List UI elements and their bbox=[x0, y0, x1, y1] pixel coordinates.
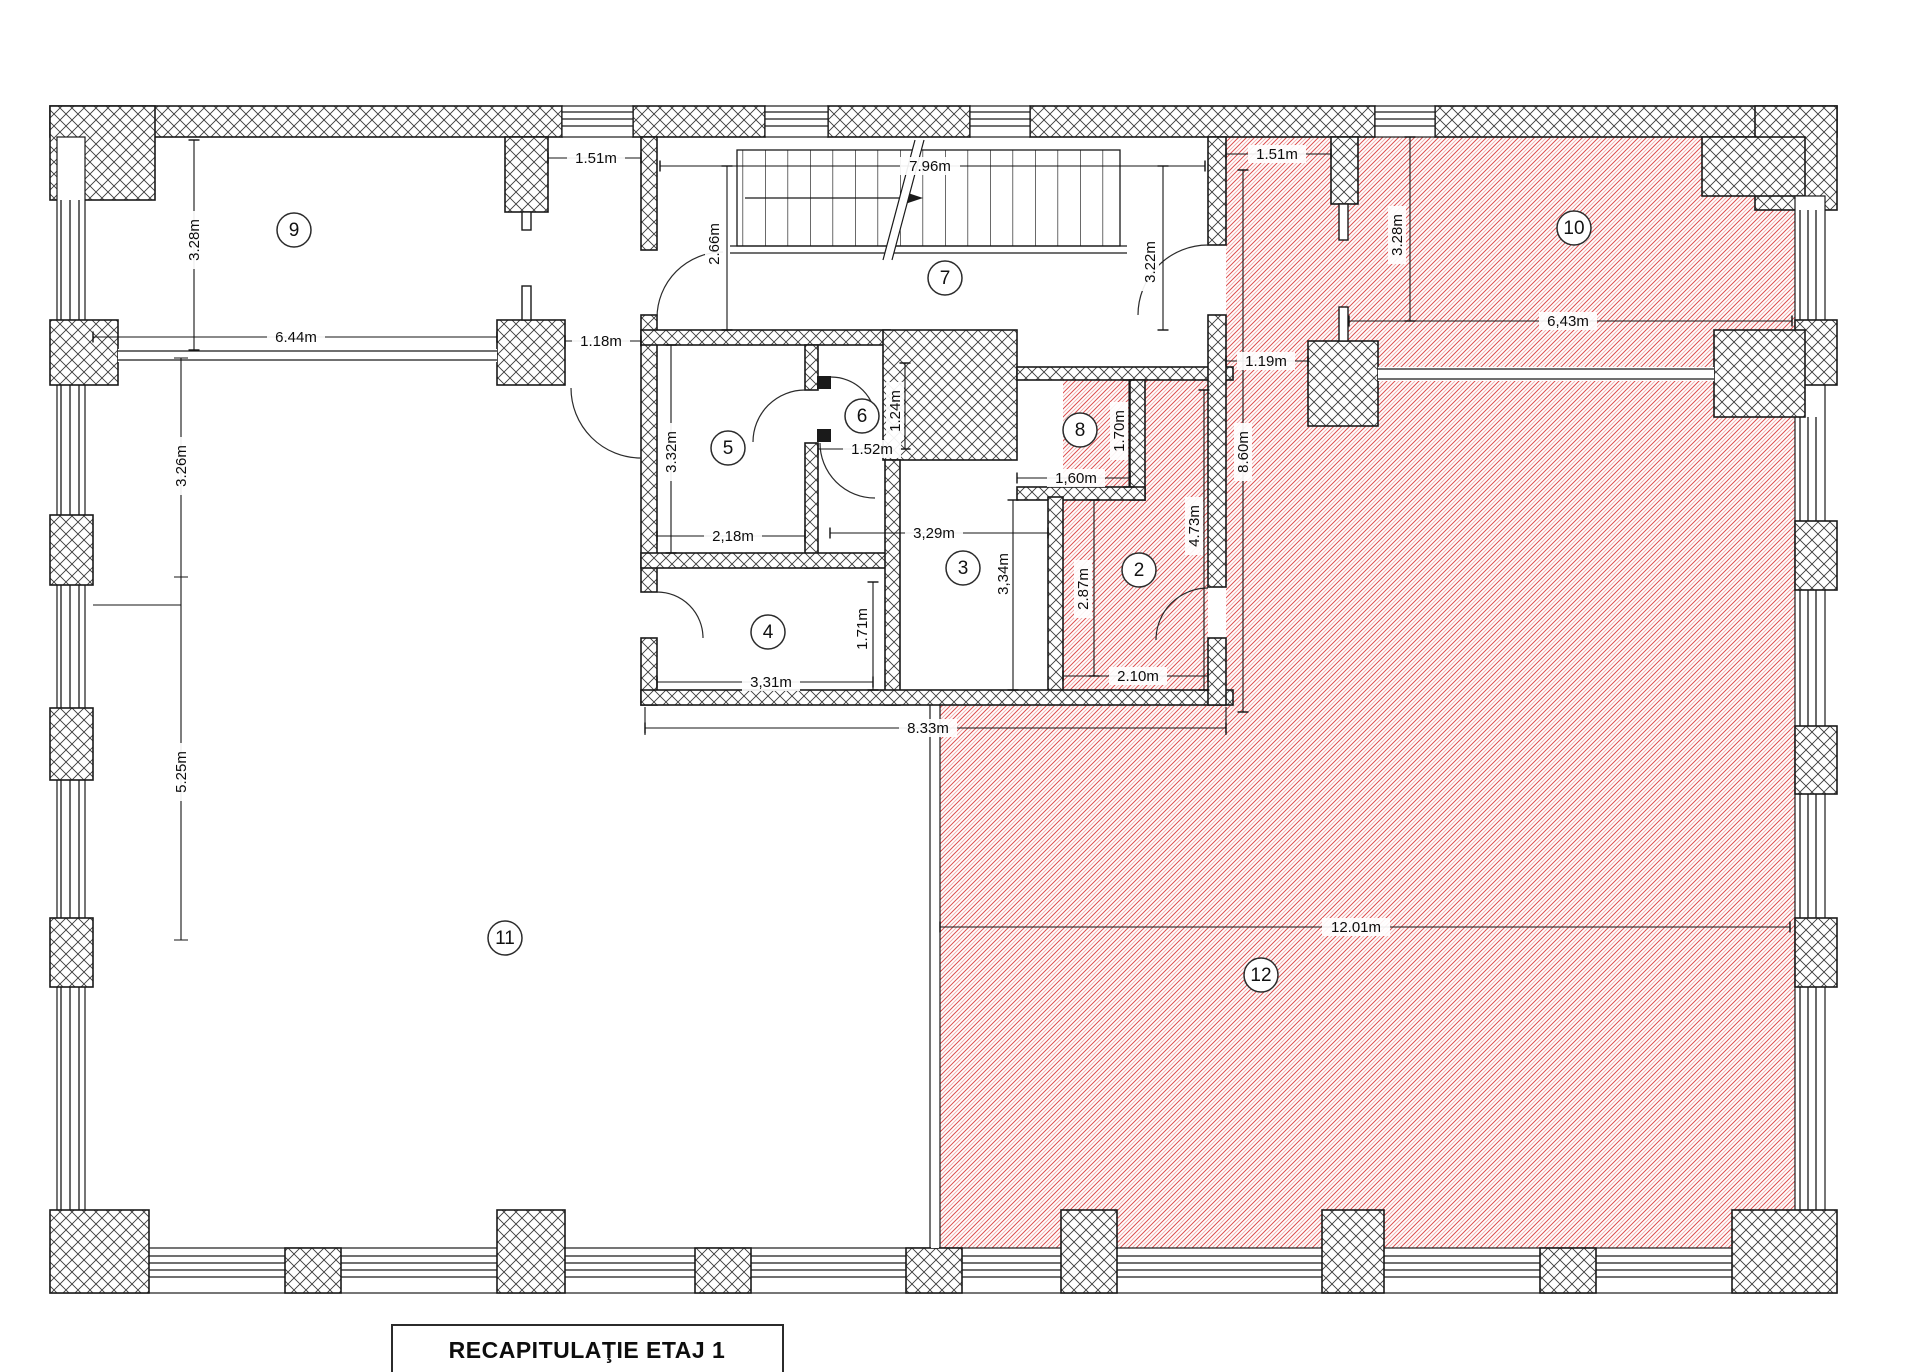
svg-text:2.87m: 2.87m bbox=[1075, 568, 1092, 610]
partition-room9-room11 bbox=[118, 349, 497, 362]
partition-room10-room12 bbox=[1378, 367, 1714, 381]
corner-bottom-left bbox=[50, 1210, 149, 1293]
svg-text:1.19m: 1.19m bbox=[1245, 353, 1287, 370]
svg-text:3.22m: 3.22m bbox=[1142, 241, 1159, 283]
dim-stair-left-height: 2.66m bbox=[705, 215, 723, 273]
dim-top-gap-left: 1.51m bbox=[567, 149, 625, 167]
svg-text:1.24m: 1.24m bbox=[887, 390, 904, 432]
room-badge-2: 2 bbox=[1122, 553, 1156, 587]
svg-text:2.10m: 2.10m bbox=[1117, 668, 1159, 685]
dim-room3-height: 3,34m bbox=[994, 545, 1012, 603]
svg-text:12: 12 bbox=[1250, 965, 1271, 986]
svg-text:8: 8 bbox=[1075, 420, 1086, 441]
column-red-mid bbox=[1308, 341, 1378, 426]
svg-text:11: 11 bbox=[495, 928, 515, 949]
svg-text:1.71m: 1.71m bbox=[854, 608, 871, 650]
dim-room5-height: 3.32m bbox=[662, 423, 680, 481]
door-passage-118 bbox=[571, 388, 641, 458]
svg-text:9: 9 bbox=[289, 220, 300, 241]
dim-room9-height: 3.28m bbox=[185, 211, 203, 269]
dim-room3-width: 3,29m bbox=[905, 524, 963, 542]
dim-passage-width: 1.18m bbox=[572, 332, 630, 350]
svg-text:1.52m: 1.52m bbox=[851, 441, 893, 458]
dim-room4-width: 3,31m bbox=[742, 673, 800, 691]
svg-text:3,31m: 3,31m bbox=[750, 674, 792, 691]
dim-room2-height: 4.73m bbox=[1185, 497, 1203, 555]
dim-room10-width: 6,43m bbox=[1539, 312, 1597, 330]
svg-text:1,60m: 1,60m bbox=[1055, 470, 1097, 487]
svg-text:6.44m: 6.44m bbox=[275, 329, 317, 346]
room-badge-10: 10 bbox=[1557, 211, 1591, 245]
room-badge-7: 7 bbox=[928, 261, 962, 295]
svg-text:3,34m: 3,34m bbox=[995, 553, 1012, 595]
partition-room11-room12 bbox=[930, 705, 940, 1248]
room-badge-6: 6 bbox=[845, 399, 879, 433]
title-block: RECAPITULAŢIE ETAJ 1 bbox=[392, 1325, 783, 1372]
svg-text:12.01m: 12.01m bbox=[1331, 919, 1381, 936]
left-wall bbox=[50, 137, 118, 1248]
room-badge-4: 4 bbox=[751, 615, 785, 649]
dim-room10-height: 3.28m bbox=[1388, 206, 1406, 264]
dim-room6-height: 1.24m bbox=[886, 382, 904, 440]
svg-text:6: 6 bbox=[857, 406, 868, 427]
red-area-room12-left bbox=[940, 705, 1226, 1248]
svg-text:3: 3 bbox=[958, 558, 969, 579]
svg-text:3.32m: 3.32m bbox=[663, 431, 680, 473]
page-title: RECAPITULAŢIE ETAJ 1 bbox=[449, 1337, 726, 1363]
dim-left-seg2: 5.25m bbox=[172, 743, 190, 801]
svg-text:3,29m: 3,29m bbox=[913, 525, 955, 542]
door-frame-tab bbox=[817, 429, 831, 442]
door-room5 bbox=[753, 390, 805, 442]
svg-text:2,18m: 2,18m bbox=[712, 528, 754, 545]
dim-room2-inner-height: 2.87m bbox=[1074, 560, 1092, 618]
corner-bottom-right bbox=[1732, 1210, 1837, 1293]
red-area-right-zone bbox=[1226, 137, 1795, 1248]
dim-left-seg1: 3.26m bbox=[172, 437, 190, 495]
column-top-1 bbox=[505, 137, 548, 212]
svg-text:5: 5 bbox=[723, 438, 734, 459]
column-right-mid bbox=[1714, 330, 1805, 417]
svg-text:3.26m: 3.26m bbox=[173, 445, 190, 487]
svg-text:1.18m: 1.18m bbox=[580, 333, 622, 350]
door-frame-tab bbox=[817, 376, 831, 389]
column-red-top bbox=[1331, 137, 1358, 204]
svg-text:1.70m: 1.70m bbox=[1111, 410, 1128, 452]
room-badge-3: 3 bbox=[946, 551, 980, 585]
svg-text:5.25m: 5.25m bbox=[173, 751, 190, 793]
room-badge-5: 5 bbox=[711, 431, 745, 465]
svg-text:3.28m: 3.28m bbox=[186, 219, 203, 261]
dim-room4-height: 1.71m bbox=[853, 600, 871, 658]
room-badge-11: 11 bbox=[488, 921, 522, 955]
dim-room8-width: 1,60m bbox=[1047, 469, 1105, 487]
dim-corridor-height: 8.60m bbox=[1234, 423, 1252, 481]
svg-text:1.51m: 1.51m bbox=[1256, 146, 1298, 163]
svg-text:7: 7 bbox=[940, 268, 951, 289]
svg-text:4: 4 bbox=[763, 622, 774, 643]
svg-text:7.96m: 7.96m bbox=[909, 158, 951, 175]
door-room4 bbox=[657, 592, 703, 638]
svg-text:10: 10 bbox=[1563, 218, 1584, 239]
dim-top-gap-right: 1.51m bbox=[1248, 145, 1306, 163]
svg-text:2: 2 bbox=[1134, 560, 1145, 581]
floor-plan-canvas: 1.51m 7.96m 2.66m 3.22m 1.51m 3.28m 6,43… bbox=[0, 0, 1919, 1372]
dim-room12-width: 12.01m bbox=[1322, 918, 1390, 936]
svg-text:8.33m: 8.33m bbox=[907, 720, 949, 737]
dim-stair-right-height: 3.22m bbox=[1141, 233, 1159, 291]
dim-room9-width: 6.44m bbox=[267, 328, 325, 346]
dim-room2-width: 2.10m bbox=[1109, 667, 1167, 685]
dim-stair-hall-width: 7.96m bbox=[900, 157, 960, 175]
svg-text:6,43m: 6,43m bbox=[1547, 313, 1589, 330]
dim-corridor-gap: 1.19m bbox=[1237, 352, 1295, 370]
dim-cluster-width: 8.33m bbox=[899, 719, 957, 737]
room-badge-9: 9 bbox=[277, 213, 311, 247]
svg-text:8.60m: 8.60m bbox=[1235, 431, 1252, 473]
svg-text:2.66m: 2.66m bbox=[706, 223, 723, 265]
dim-room8-height: 1.70m bbox=[1110, 402, 1128, 460]
dim-room5-width: 2,18m bbox=[704, 527, 762, 545]
svg-text:1.51m: 1.51m bbox=[575, 150, 617, 167]
room-badge-8: 8 bbox=[1063, 413, 1097, 447]
column-room9-right bbox=[497, 320, 565, 385]
svg-text:3.28m: 3.28m bbox=[1389, 214, 1406, 256]
svg-text:4.73m: 4.73m bbox=[1186, 505, 1203, 547]
room-badge-12: 12 bbox=[1244, 958, 1278, 992]
dim-room6-width: 1.52m bbox=[843, 440, 901, 458]
